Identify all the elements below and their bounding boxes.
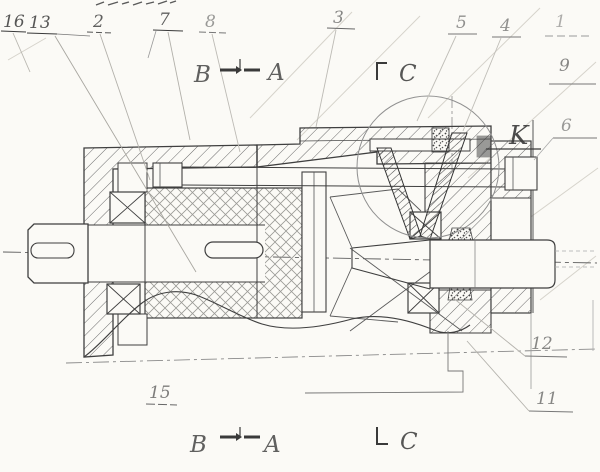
callout-11-label: 11 [536, 389, 558, 409]
view-c-marker-bottom: C [377, 427, 418, 455]
callout-16: 16 [1, 12, 30, 72]
callout-7: 7 [148, 10, 190, 140]
bearing-upper-left [110, 192, 145, 223]
cropped-top-handwriting [96, 1, 176, 5]
inner-shaft-keyway-slot [205, 242, 263, 258]
dotted-fastener [432, 128, 449, 152]
scanned-drawing-page: 16 13 2 7 8 3 5 4 1 [0, 0, 600, 472]
callout-3: 3 [316, 8, 355, 127]
callout-13-label: 13 [29, 13, 51, 33]
callout-15: 15 [146, 383, 177, 405]
dark-bolt-section [477, 136, 490, 157]
section-arrow-icon [236, 66, 242, 74]
section-b-top-label: B [193, 62, 211, 88]
input-shaft-keyway-slot [31, 243, 74, 258]
callout-5-label: 5 [456, 13, 467, 33]
callout-8-label: 8 [205, 12, 216, 32]
callout-5: 5 [417, 13, 477, 121]
section-marker-ba-bottom: B A [189, 427, 281, 458]
callout-9: 9 [549, 56, 596, 84]
section-b-bottom-label: B [189, 432, 207, 458]
view-c-bracket-icon [377, 63, 387, 80]
callout-16-label: 16 [3, 12, 25, 32]
callout-15-label: 15 [149, 383, 171, 403]
callout-2-label: 2 [92, 12, 104, 32]
tie-bolt-nut [505, 157, 537, 190]
callout-4: 4 [463, 16, 521, 131]
section-a-bottom-label: A [262, 432, 281, 458]
callout-3-label: 3 [333, 8, 344, 28]
callout-1-label: 1 [555, 12, 566, 32]
view-c-bottom-label: C [400, 429, 418, 455]
view-c-bracket-icon [377, 427, 388, 444]
callout-4-label: 4 [499, 16, 511, 36]
callout-6-label: 6 [561, 116, 572, 136]
output-shaft [352, 240, 597, 289]
drawing-canvas: 16 13 2 7 8 3 5 4 1 [0, 0, 600, 472]
bearing-lower-left [107, 284, 140, 314]
section-marker-ba-top: B A [193, 59, 285, 88]
clutch-disc-plate [302, 172, 326, 312]
section-arrow-icon [236, 433, 242, 441]
callout-1: 1 [545, 12, 592, 36]
view-c-marker-top: C [377, 61, 417, 87]
input-shaft [28, 224, 88, 283]
callout-12-label: 12 [531, 334, 553, 354]
callout-7-label: 7 [159, 10, 170, 30]
view-c-top-label: C [399, 61, 417, 87]
callout-6: 6 [534, 116, 597, 160]
callout-9-label: 9 [559, 56, 570, 76]
section-a-top-label: A [266, 60, 285, 86]
view-k-label: K [508, 121, 530, 151]
